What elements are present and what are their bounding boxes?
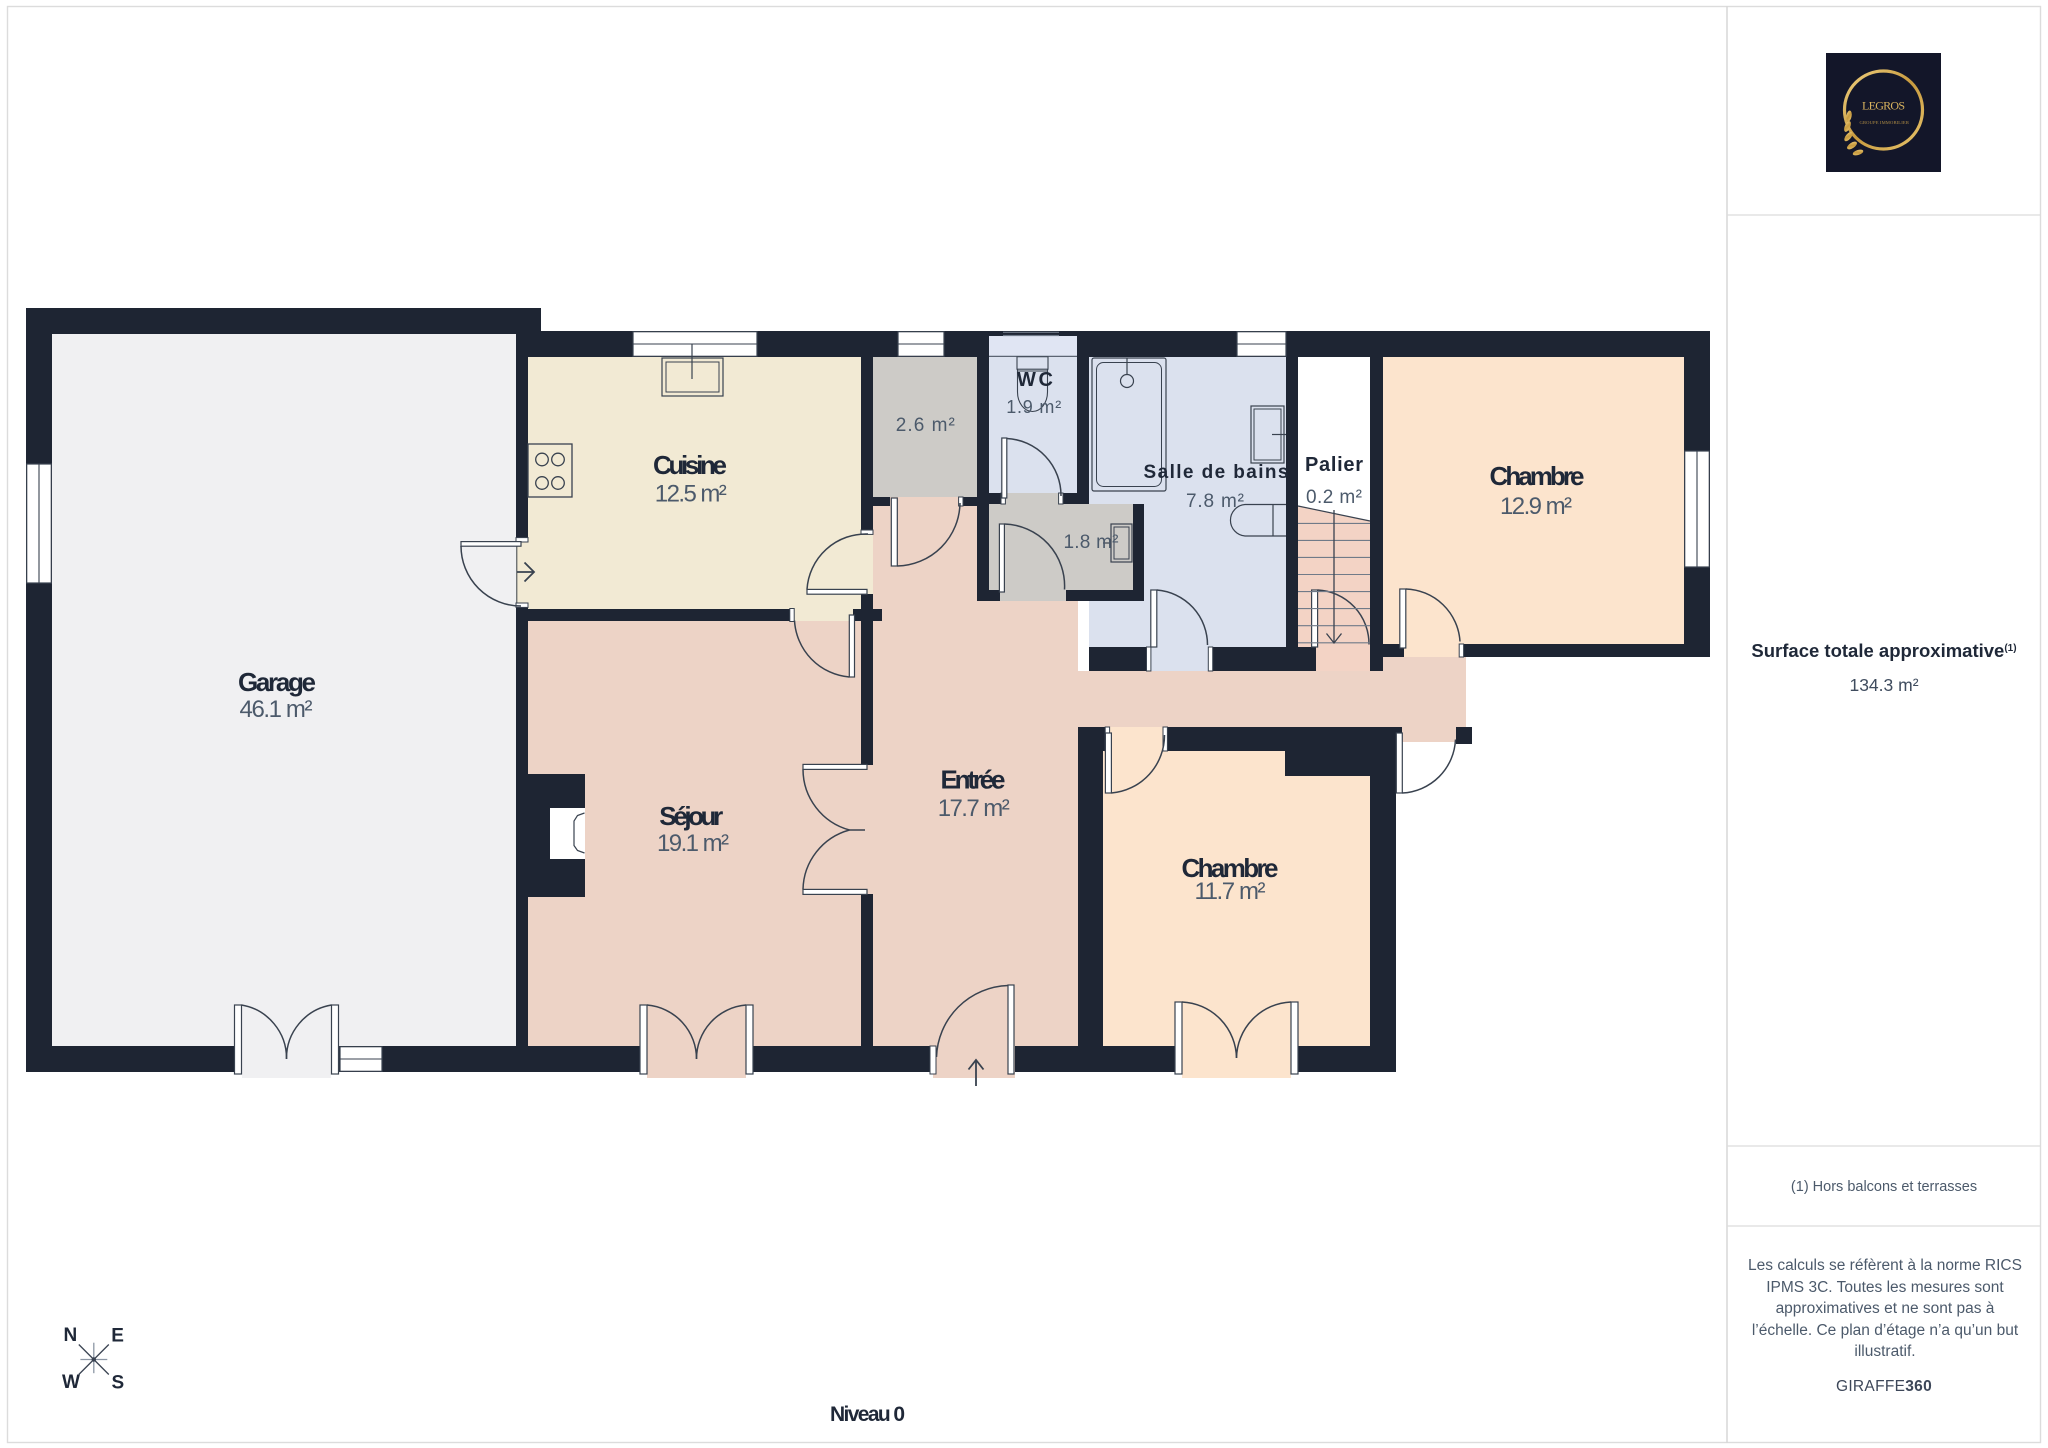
svg-text:0.2 m²: 0.2 m² xyxy=(1306,487,1362,508)
svg-text:2.6 m²: 2.6 m² xyxy=(896,415,955,436)
svg-text:1.8 m²: 1.8 m² xyxy=(1064,532,1119,553)
svg-text:12.5 m²: 12.5 m² xyxy=(655,481,727,508)
svg-text:Palier: Palier xyxy=(1305,454,1363,476)
svg-text:N: N xyxy=(64,1325,78,1346)
svg-text:WC: WC xyxy=(1017,369,1053,391)
svg-text:S: S xyxy=(112,1373,125,1394)
svg-text:7.8 m²: 7.8 m² xyxy=(1186,491,1244,512)
svg-text:11.7 m²: 11.7 m² xyxy=(1195,878,1266,905)
svg-text:Salle de bains: Salle de bains xyxy=(1144,462,1289,483)
svg-text:1.9 m²: 1.9 m² xyxy=(1006,397,1061,417)
svg-text:W: W xyxy=(62,1372,80,1393)
svg-text:Garage: Garage xyxy=(238,667,316,697)
svg-text:Entrée: Entrée xyxy=(941,765,1006,795)
svg-text:19.1 m²: 19.1 m² xyxy=(657,830,729,857)
svg-text:Niveau 0: Niveau 0 xyxy=(830,1403,905,1426)
svg-text:17.7 m²: 17.7 m² xyxy=(938,795,1010,822)
svg-text:Cuisine: Cuisine xyxy=(653,450,727,480)
svg-text:Séjour: Séjour xyxy=(659,801,723,831)
svg-text:Chambre: Chambre xyxy=(1490,461,1585,491)
svg-text:LEGROS: LEGROS xyxy=(1862,99,1906,113)
svg-text:46.1 m²: 46.1 m² xyxy=(240,696,313,723)
svg-text:12.9 m²: 12.9 m² xyxy=(1500,493,1572,520)
svg-text:E: E xyxy=(111,1326,124,1347)
svg-text:GROUPE IMMOBILIER: GROUPE IMMOBILIER xyxy=(1860,120,1910,125)
